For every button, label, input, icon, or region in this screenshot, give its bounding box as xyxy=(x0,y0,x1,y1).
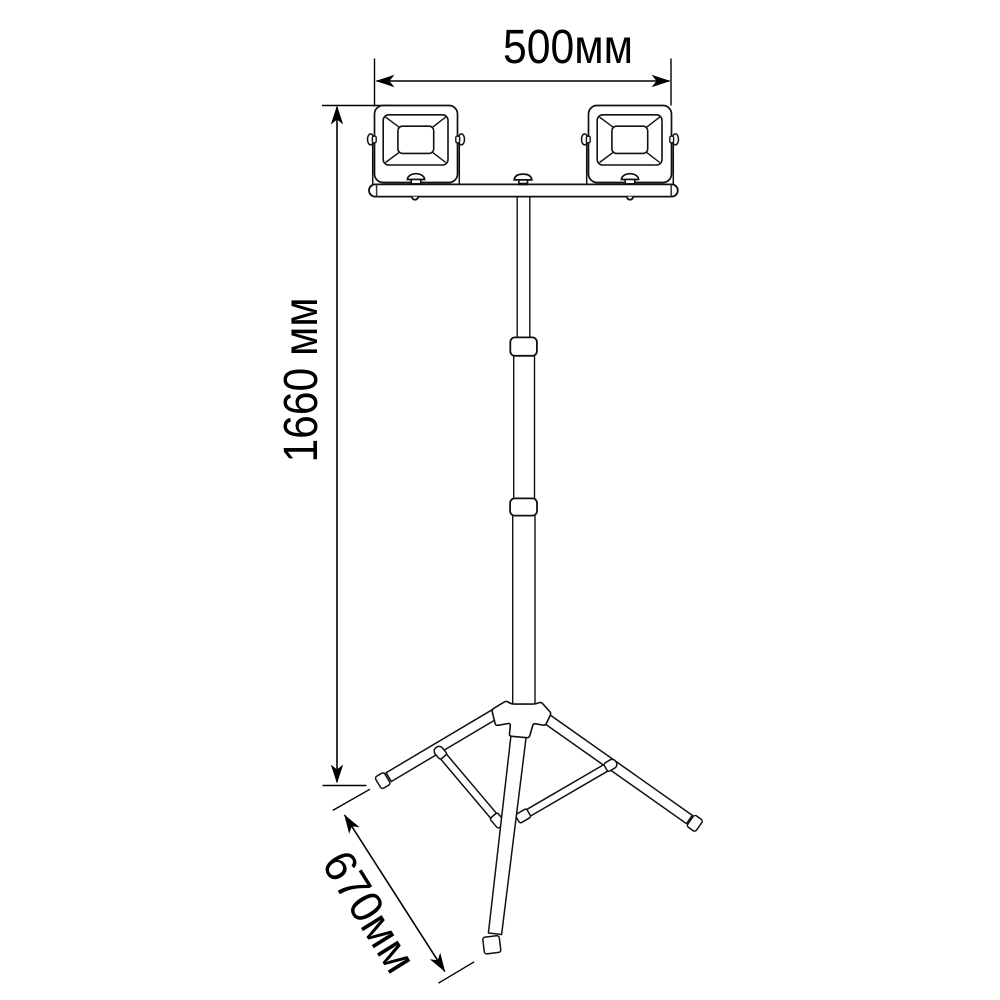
svg-text:1660 мм: 1660 мм xyxy=(275,298,328,463)
svg-text:500мм: 500мм xyxy=(503,21,633,74)
